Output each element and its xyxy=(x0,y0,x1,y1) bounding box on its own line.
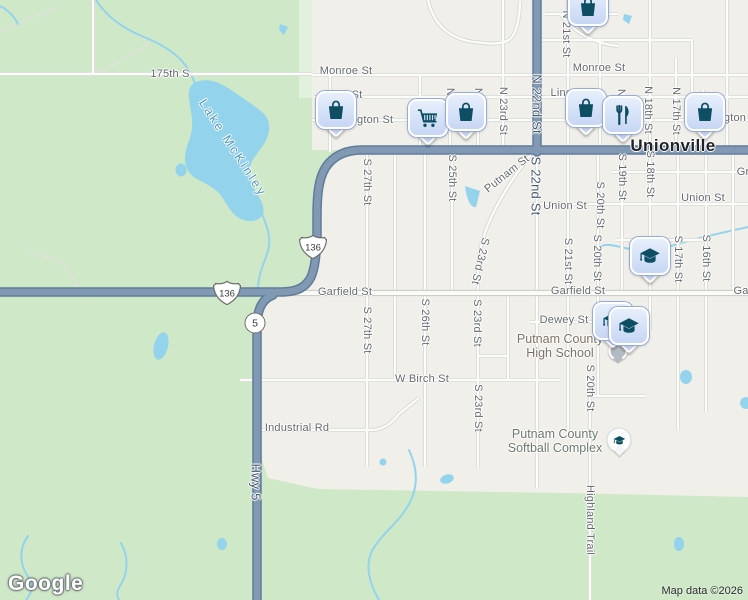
softball-complex-poi-pin[interactable] xyxy=(608,429,631,452)
route-shield-5: 5 xyxy=(245,313,266,334)
shopping-bag-icon xyxy=(324,98,348,122)
route-shield-us136-north: 136 xyxy=(299,234,327,260)
shopping-bag-icon xyxy=(693,100,717,124)
graduation-cap-icon xyxy=(617,314,641,338)
shopping-bag-icon xyxy=(574,96,598,120)
store-marker-3[interactable] xyxy=(568,0,608,26)
shield-number: 5 xyxy=(246,317,265,329)
shopping-cart-icon xyxy=(416,106,440,130)
graduation-cap-icon xyxy=(612,433,626,447)
shield-number: 136 xyxy=(299,243,327,254)
school-marker-1[interactable] xyxy=(630,237,670,275)
map-canvas[interactable]: 175th S Monroe St Monroe St St Linc ngto… xyxy=(0,0,748,600)
map-data-attribution: Map data ©2026 xyxy=(662,585,744,597)
graduation-cap-icon xyxy=(638,244,662,268)
route-shield-us136-west: 136 xyxy=(213,280,241,306)
store-marker-5[interactable] xyxy=(685,93,725,131)
shield-number: 136 xyxy=(213,289,241,300)
shopping-bag-icon xyxy=(454,100,478,124)
store-marker-2[interactable] xyxy=(446,93,486,131)
shopping-bag-icon xyxy=(576,0,600,19)
store-marker-1[interactable] xyxy=(316,91,356,129)
restaurant-marker[interactable] xyxy=(603,96,643,134)
google-logo[interactable]: Google xyxy=(8,572,83,596)
school-marker-3[interactable] xyxy=(609,307,649,345)
store-marker-4[interactable] xyxy=(566,89,606,127)
map-terrain xyxy=(0,0,748,600)
grocery-marker[interactable] xyxy=(408,99,448,137)
restaurant-icon xyxy=(611,103,635,127)
